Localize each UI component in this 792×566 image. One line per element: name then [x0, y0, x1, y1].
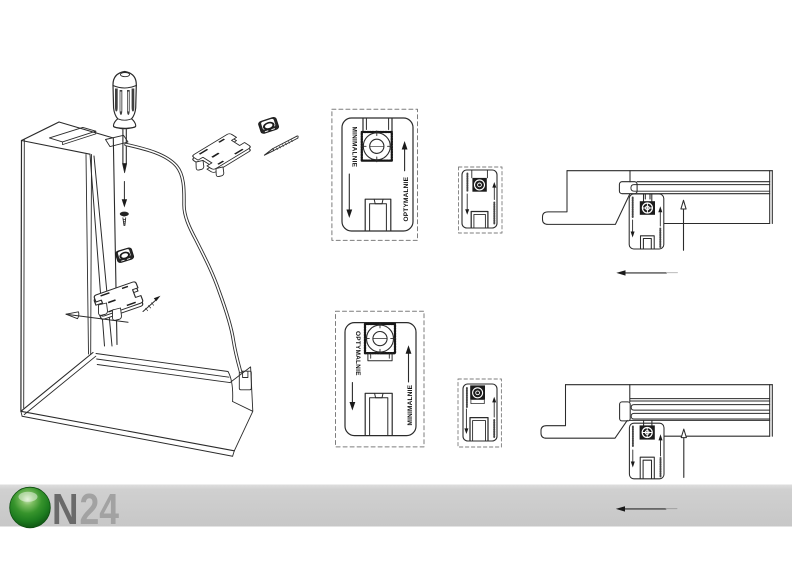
svg-text:OPTYMALNIE: OPTYMALNIE: [403, 176, 410, 221]
svg-text:MINIMALNIE: MINIMALNIE: [351, 127, 358, 168]
svg-text:MINIMALNIE: MINIMALNIE: [407, 384, 414, 425]
svg-text:OPTYMALNIE: OPTYMALNIE: [354, 331, 361, 376]
svg-text:N: N: [52, 485, 79, 534]
svg-text:24: 24: [80, 485, 120, 534]
